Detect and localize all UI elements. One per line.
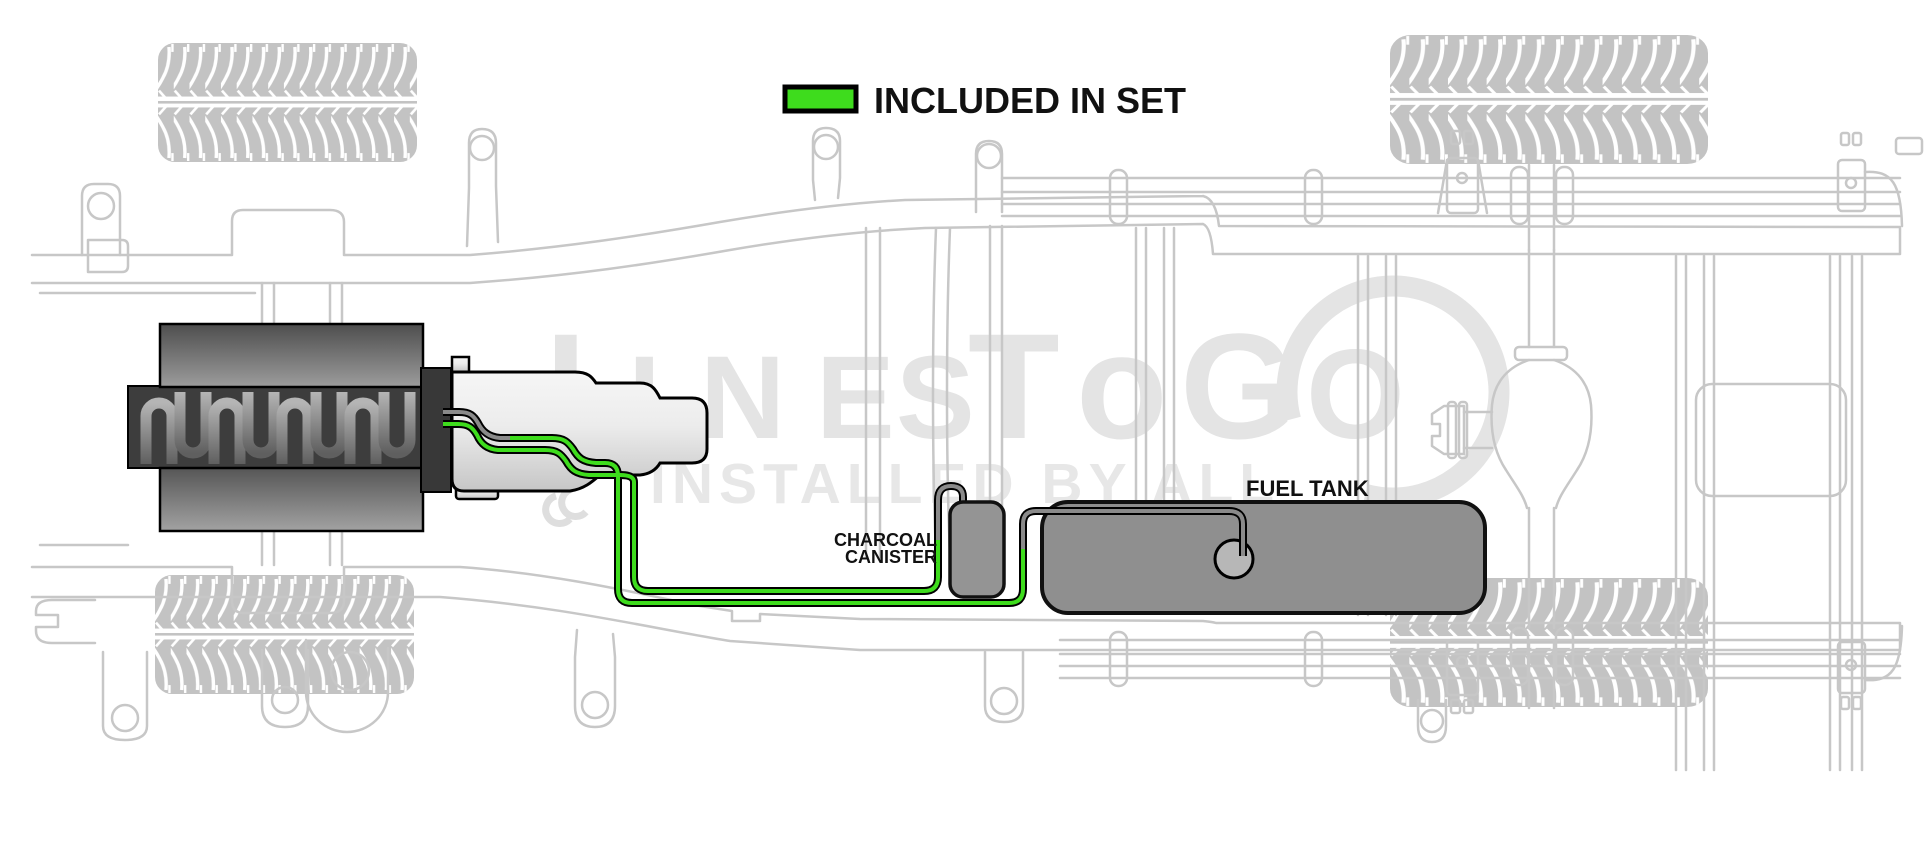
fuel-sender-unit — [1215, 540, 1253, 578]
frame-hole — [991, 688, 1017, 714]
watermark-letter: E — [816, 332, 895, 464]
tire-front-right — [155, 575, 414, 694]
frame-hole — [1421, 710, 1443, 732]
charcoal-canister-label-line2: CANISTER — [845, 547, 937, 567]
bellhousing — [421, 368, 451, 492]
fuel-tank-label: FUEL TANK — [1246, 476, 1369, 501]
legend: INCLUDED IN SET — [785, 80, 1186, 121]
valve-cover-bottom — [160, 468, 423, 531]
frame-rear-box — [1696, 384, 1846, 496]
diagram-canvas: L I N E S T o G O INSTALLED BY ALL — [0, 0, 1930, 841]
legend-included-swatch — [785, 87, 856, 111]
frame-hole — [582, 692, 608, 718]
valve-cover-top — [160, 324, 423, 387]
frame-hole — [88, 193, 114, 219]
tire-rear-left — [1390, 35, 1708, 164]
engine — [128, 324, 451, 531]
frame-hole — [470, 136, 494, 160]
transmission-tab — [452, 357, 469, 372]
watermark-letter: O — [1306, 323, 1405, 465]
watermark-letter: N — [700, 332, 785, 464]
watermark-mini-logo — [546, 489, 586, 523]
fuel-tank — [1042, 502, 1485, 613]
watermark: L I N E S T o G O INSTALLED BY ALL — [545, 262, 1523, 523]
frame-hole — [112, 705, 138, 731]
fuel-line-diagram-page: L I N E S T o G O INSTALLED BY ALL — [0, 0, 1930, 841]
tire-front-left — [158, 43, 417, 162]
watermark-letter: S — [896, 332, 975, 464]
frame-rail-upper — [32, 196, 1900, 283]
charcoal-canister — [950, 502, 1004, 597]
watermark-letter: T — [968, 302, 1060, 470]
watermark-letter: o — [1076, 302, 1168, 470]
legend-label: INCLUDED IN SET — [874, 80, 1186, 121]
frame-hole — [814, 135, 838, 159]
